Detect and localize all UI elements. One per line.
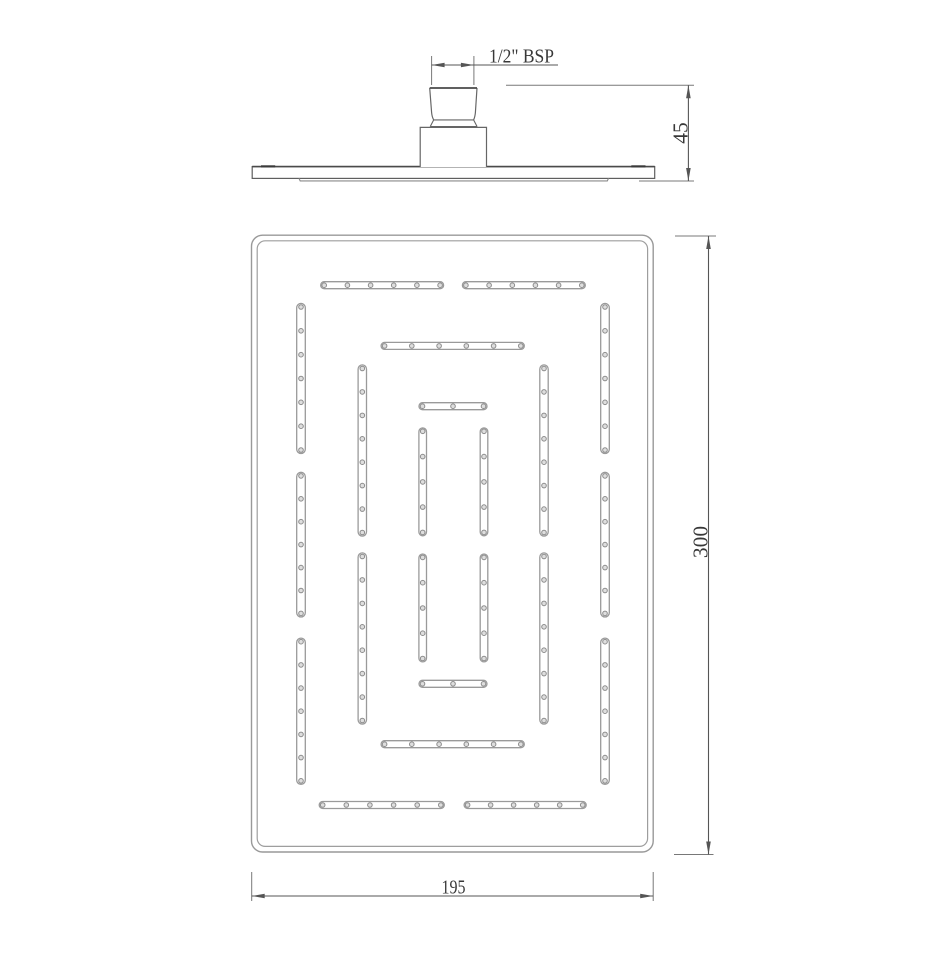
svg-text:300: 300	[688, 526, 712, 558]
svg-text:45: 45	[668, 122, 692, 144]
svg-text:1/2" BSP: 1/2" BSP	[489, 45, 554, 67]
svg-text:195: 195	[442, 877, 466, 899]
